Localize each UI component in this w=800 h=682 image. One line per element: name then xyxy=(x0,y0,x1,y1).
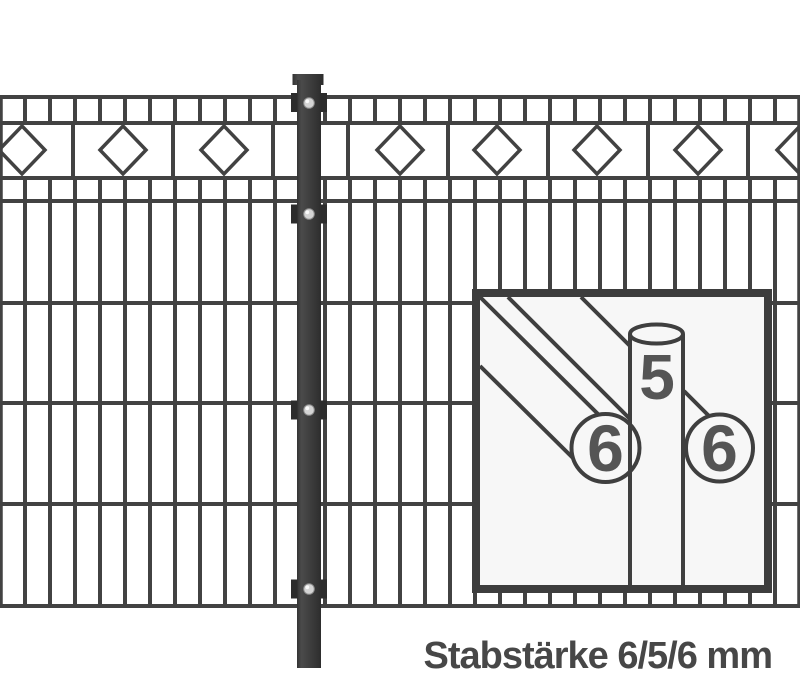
bracket-screw xyxy=(304,584,315,595)
bracket-tab-right xyxy=(321,93,328,112)
detail-inset: 6 5 6 xyxy=(476,293,768,589)
post-body xyxy=(297,80,321,668)
caption-text: Stabstärke 6/5/6 mm xyxy=(423,635,772,678)
bracket-screw-highlight xyxy=(305,99,309,103)
fence-product-illustration: 6 5 6 Stabstärke 6/5/6 mm xyxy=(0,0,800,682)
bracket-tab-left xyxy=(291,401,298,420)
second-band-vertical-bars xyxy=(0,178,800,201)
bracket-screw-highlight xyxy=(305,406,309,410)
bracket-screw xyxy=(304,209,315,220)
bracket-tab-right xyxy=(321,580,328,599)
bracket-tab-right xyxy=(321,401,328,420)
bracket-tab-left xyxy=(291,205,298,224)
bracket-tab-left xyxy=(291,93,298,112)
back-rod-diameter-label: 6 xyxy=(701,411,738,485)
fence-drawing: 6 5 6 xyxy=(0,0,800,682)
bracket-screw xyxy=(304,98,315,109)
bracket-screw xyxy=(304,405,315,416)
bracket-screw-highlight xyxy=(305,585,309,589)
front-rod-diameter-label: 6 xyxy=(587,411,624,485)
bracket-tab-left xyxy=(291,580,298,599)
top-band-vertical-bars xyxy=(0,97,800,123)
ornament-band-dividers-right-panel xyxy=(310,123,800,178)
vertical-rod-diameter-label: 5 xyxy=(639,341,675,413)
bracket-tab-right xyxy=(321,205,328,224)
bracket-screw-highlight xyxy=(305,210,309,214)
